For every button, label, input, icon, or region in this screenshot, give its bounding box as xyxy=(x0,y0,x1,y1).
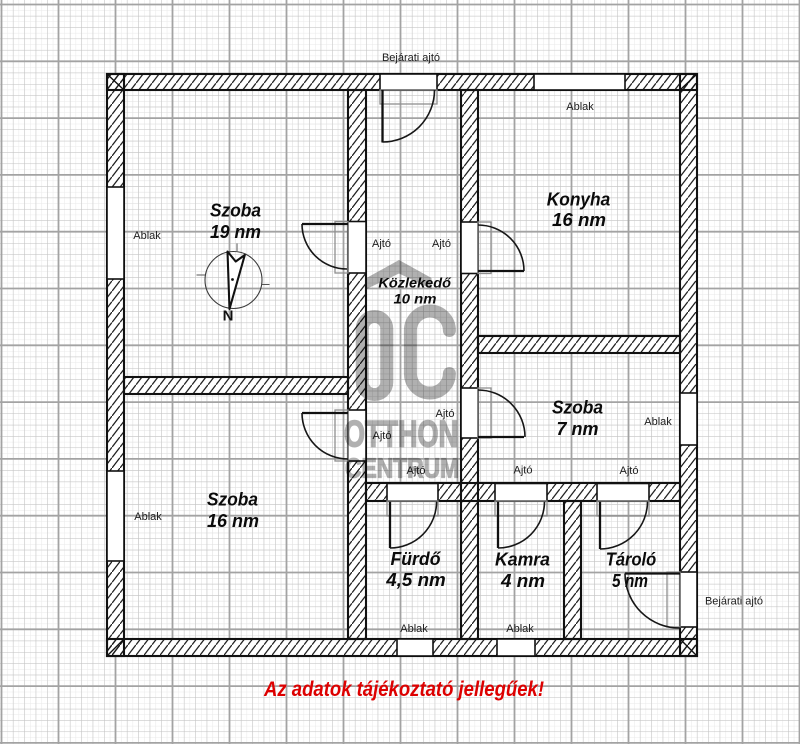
svg-text:10 nm: 10 nm xyxy=(394,291,437,307)
svg-text:Ajtó: Ajtó xyxy=(432,238,451,250)
svg-text:Fürdő: Fürdő xyxy=(391,549,442,569)
svg-text:Az adatok tájékoztató jellegűe: Az adatok tájékoztató jellegűek! xyxy=(263,678,544,701)
svg-text:Ablak: Ablak xyxy=(566,101,594,113)
svg-text:Bejárati ajtó: Bejárati ajtó xyxy=(382,52,440,64)
svg-text:Ablak: Ablak xyxy=(134,511,162,523)
svg-text:Konyha: Konyha xyxy=(547,190,611,210)
svg-text:Ablak: Ablak xyxy=(400,623,428,635)
svg-text:Ajtó: Ajtó xyxy=(514,465,533,477)
svg-text:Bejárati ajtó: Bejárati ajtó xyxy=(705,596,763,608)
svg-text:Ajtó: Ajtó xyxy=(372,238,391,250)
svg-text:4 nm: 4 nm xyxy=(500,571,545,591)
svg-text:Kamra: Kamra xyxy=(495,550,550,570)
svg-text:Szoba: Szoba xyxy=(207,490,258,510)
svg-text:Ablak: Ablak xyxy=(644,416,672,428)
svg-text:Ablak: Ablak xyxy=(506,623,534,635)
svg-text:7 nm: 7 nm xyxy=(557,419,599,439)
svg-text:Ajtó: Ajtó xyxy=(620,465,639,477)
svg-text:16 nm: 16 nm xyxy=(207,511,259,531)
svg-text:OTTHON: OTTHON xyxy=(344,414,458,455)
svg-text:Ablak: Ablak xyxy=(133,230,161,242)
svg-text:Szoba: Szoba xyxy=(210,201,261,221)
svg-text:16 nm: 16 nm xyxy=(552,210,606,230)
svg-text:Szoba: Szoba xyxy=(552,398,603,418)
svg-text:Tároló: Tároló xyxy=(606,550,657,570)
svg-text:19 nm: 19 nm xyxy=(210,222,261,242)
svg-text:CENTRUM: CENTRUM xyxy=(345,454,459,484)
svg-text:4,5 nm: 4,5 nm xyxy=(385,570,446,590)
svg-text:N: N xyxy=(223,308,234,325)
svg-text:5 nm: 5 nm xyxy=(612,571,648,591)
